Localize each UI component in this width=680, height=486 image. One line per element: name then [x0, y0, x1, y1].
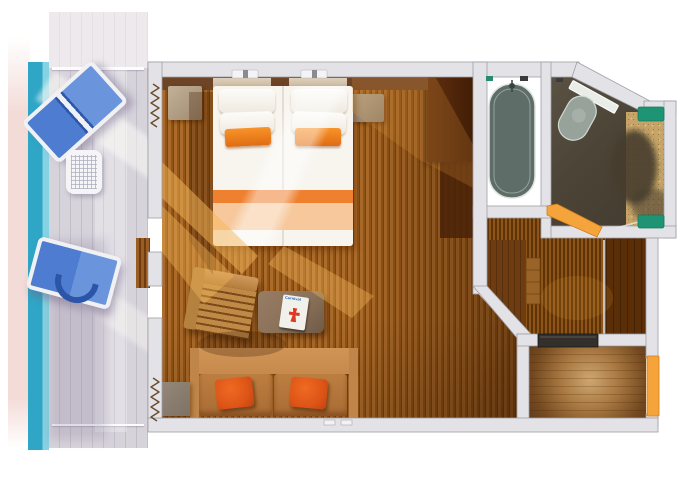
sofa-arm-right	[349, 348, 358, 418]
magazine-title: Carnival	[285, 296, 297, 302]
patio-table-mesh	[71, 155, 97, 189]
bottom-wall-fitting	[341, 420, 352, 425]
double-bed	[213, 86, 353, 246]
bathroom-tub-room-floor	[481, 74, 543, 208]
wall-left-middle	[148, 252, 162, 286]
bed-sunlight	[213, 86, 353, 246]
sofa-pillow-left	[215, 376, 255, 410]
side-table	[158, 382, 190, 416]
wall-entry-right-stub	[646, 414, 658, 426]
bottom-wall-fitting	[324, 420, 335, 425]
cruise-funnel-logo	[288, 307, 301, 322]
wardrobe	[427, 77, 477, 162]
curtain-left-top	[151, 84, 159, 127]
wall-vanity-top	[644, 101, 676, 113]
nightstand-left	[168, 86, 202, 120]
deck-edge-pink	[8, 38, 30, 448]
balcony-door-leaf	[136, 238, 150, 288]
wall-hall-right	[646, 238, 658, 358]
entry-door	[647, 356, 659, 416]
vanity-shadow	[631, 188, 671, 222]
wardrobe-extension	[440, 162, 477, 238]
deck-upper-wash	[49, 12, 148, 68]
armchair	[183, 267, 259, 340]
wall-entry-left	[517, 334, 529, 426]
closet-right	[606, 238, 646, 334]
wall-entry-top-right	[594, 334, 656, 346]
entry-floor	[529, 346, 646, 420]
sofa-arm-left	[190, 348, 199, 418]
armchair-seat-slats	[195, 283, 257, 340]
patio-table	[66, 150, 102, 194]
bathroom-floor	[549, 74, 666, 230]
nightstand-right	[352, 94, 384, 122]
entry-floor-planks	[529, 346, 646, 420]
stateroom-floor-plan: Carnival	[0, 0, 680, 486]
magazine: Carnival	[279, 294, 309, 330]
sofa-backrest	[190, 348, 358, 374]
sofa-pillow-right	[289, 376, 328, 409]
hallway-floor	[481, 216, 646, 334]
wall-entry-top-left	[517, 334, 543, 346]
sofa	[190, 348, 358, 418]
wall-bottom	[148, 418, 658, 432]
